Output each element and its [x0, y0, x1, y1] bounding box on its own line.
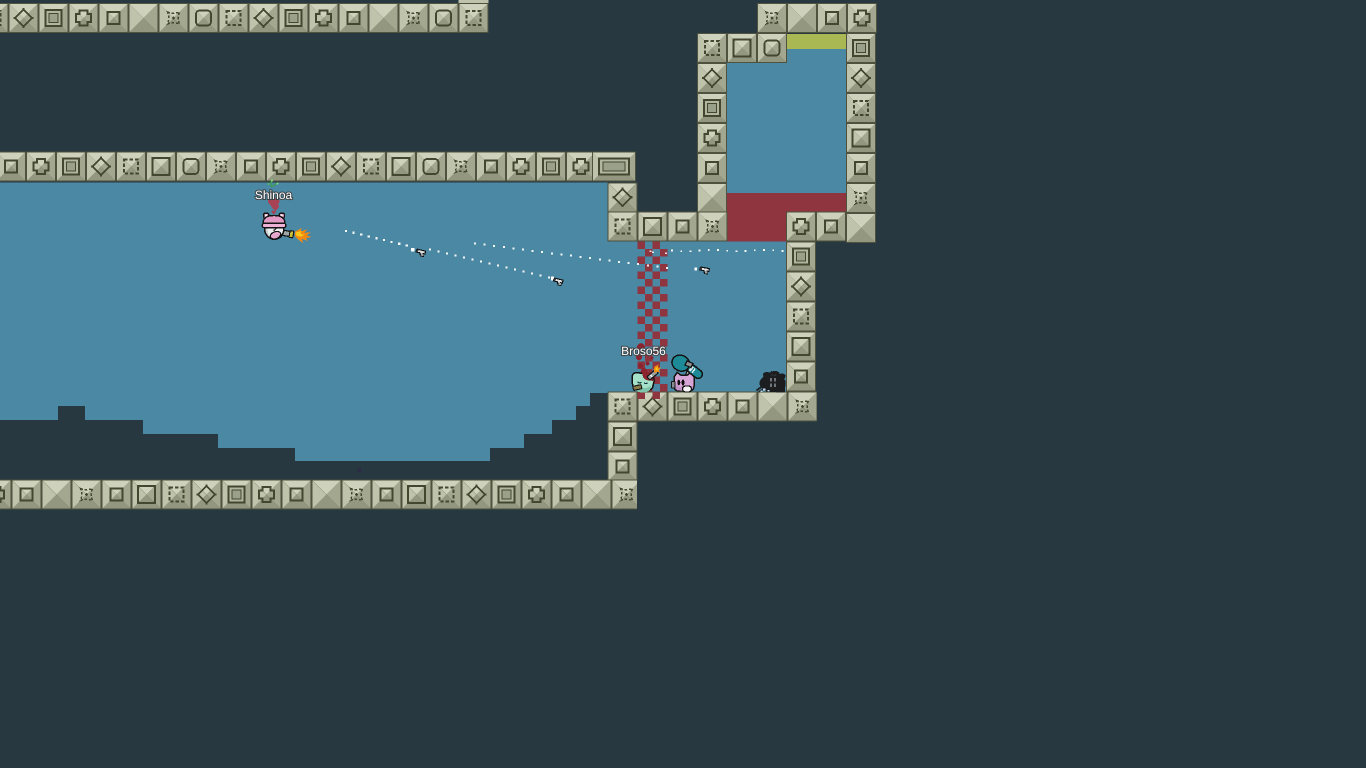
- svg-text:Broso56: Broso56: [621, 344, 666, 358]
- svg-text:Shinoa: Shinoa: [255, 188, 293, 202]
